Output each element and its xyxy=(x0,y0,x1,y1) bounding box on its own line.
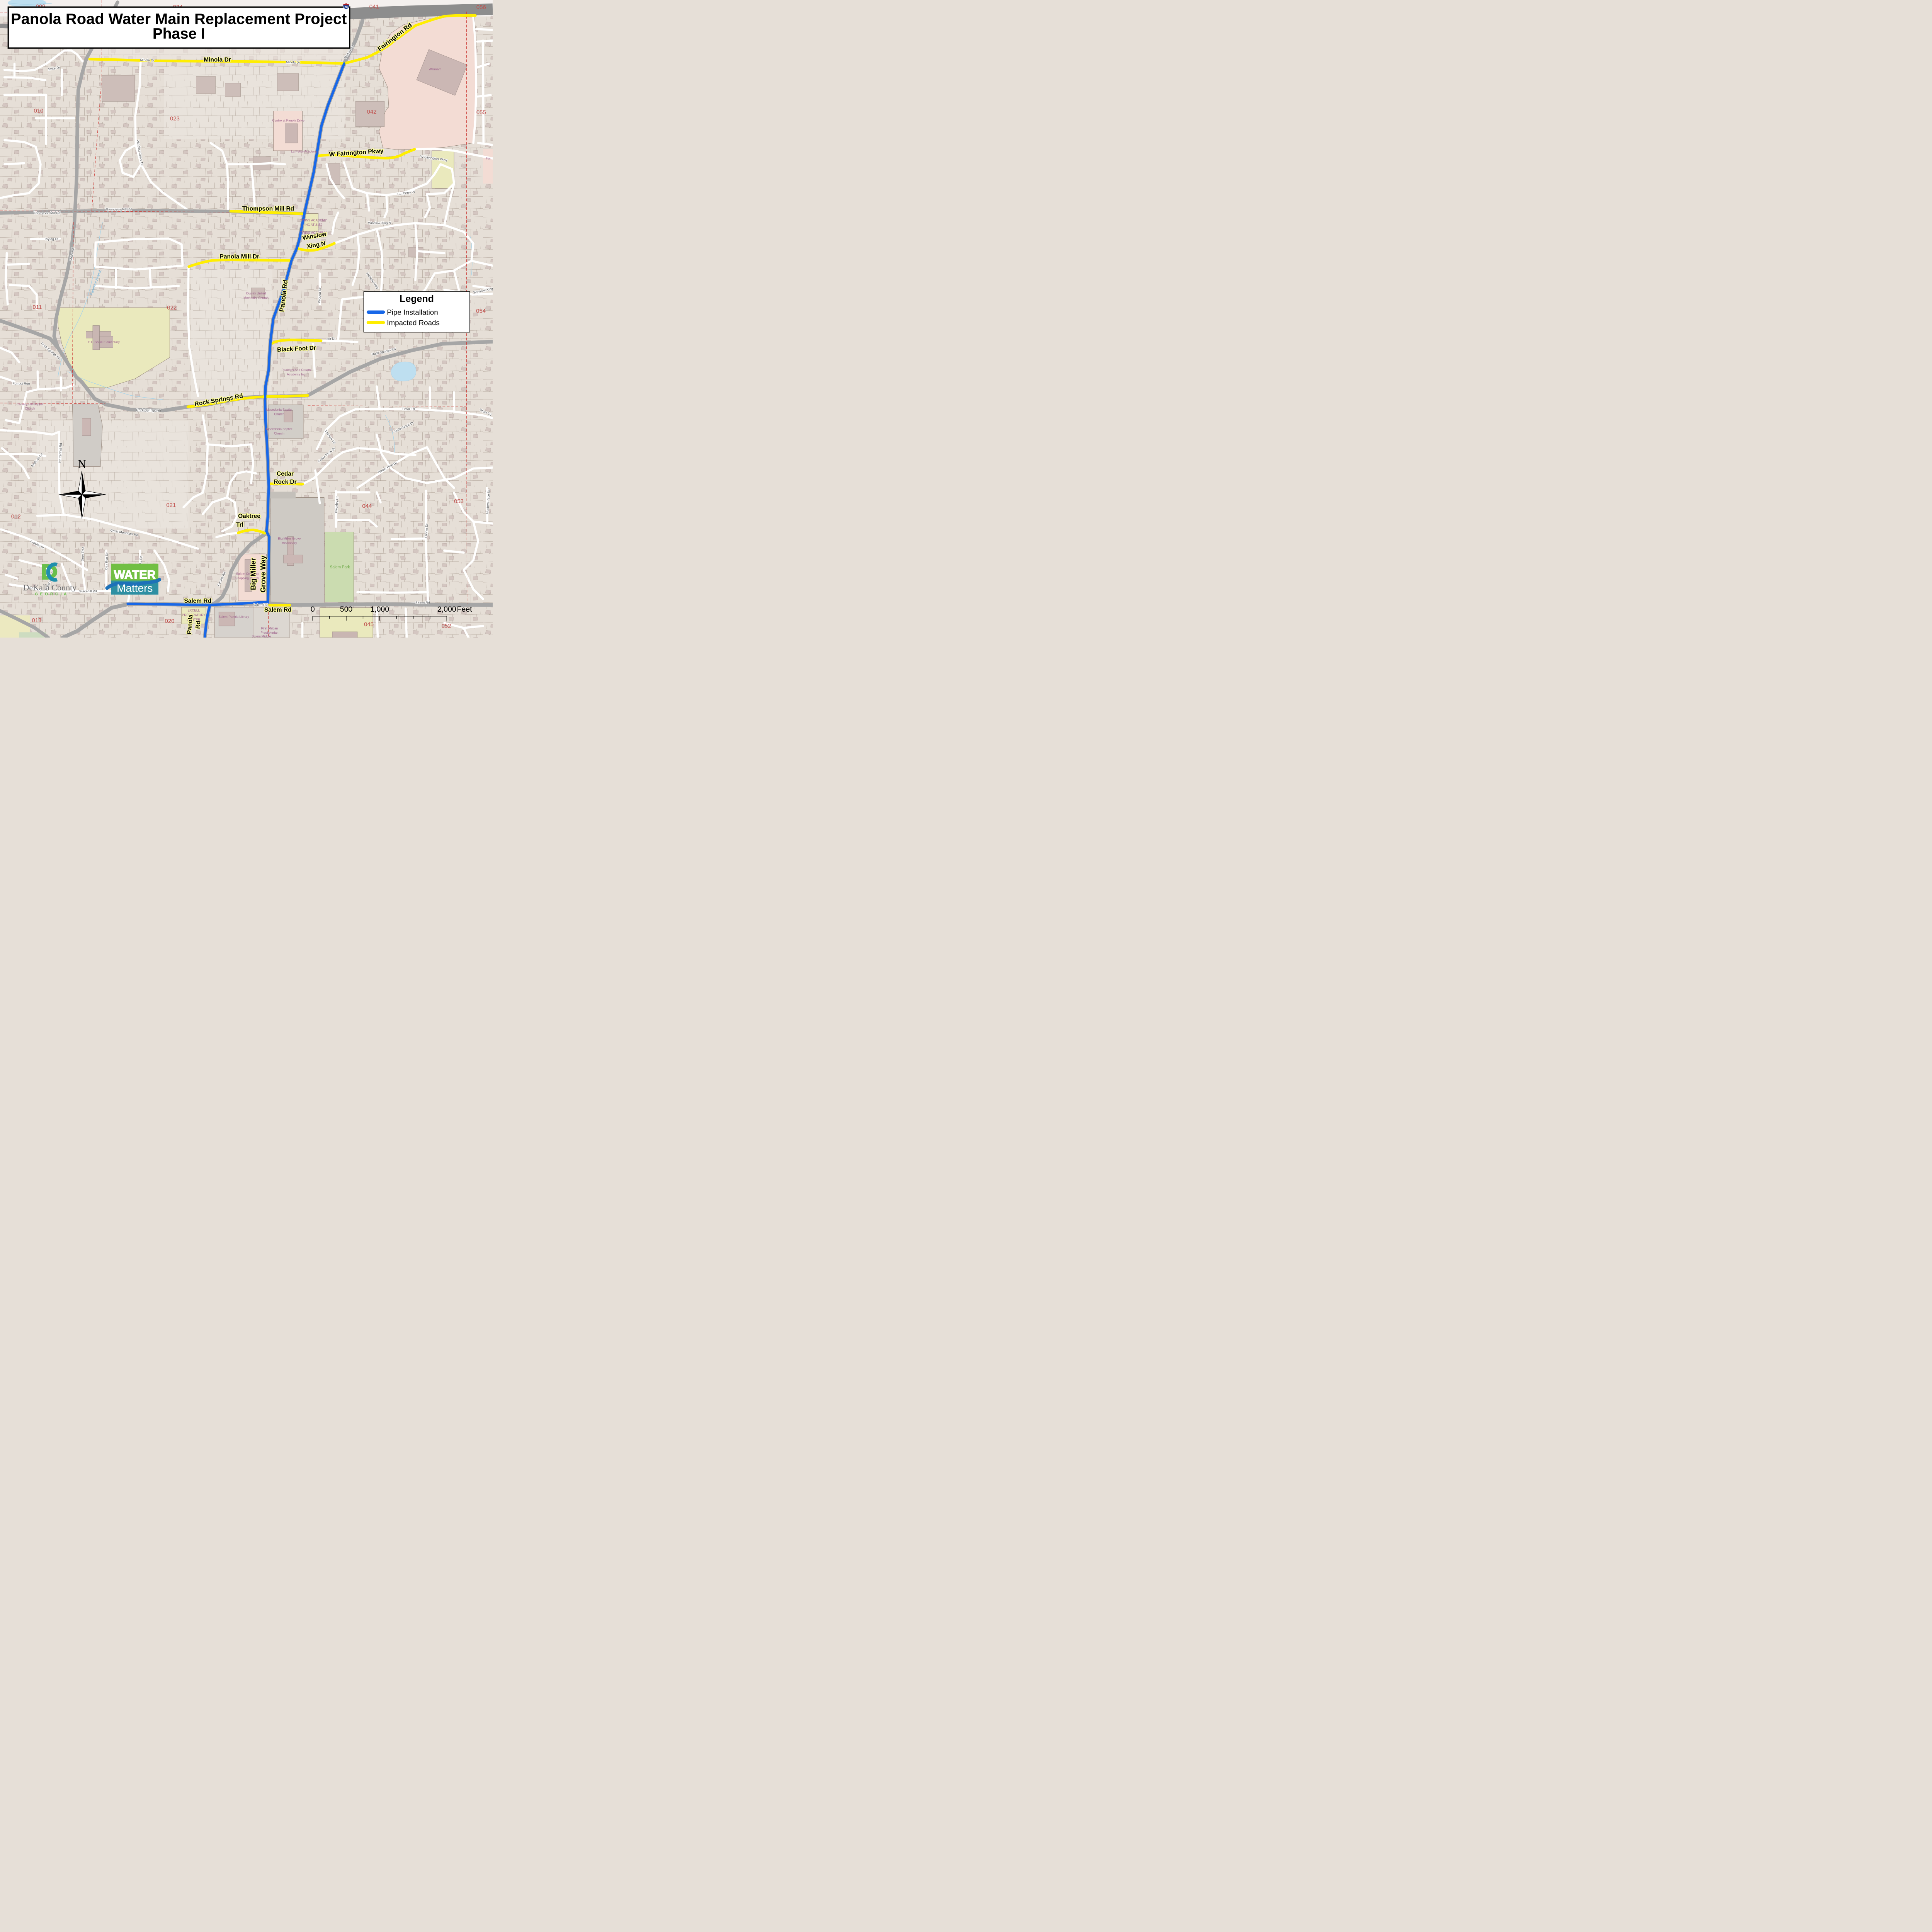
svg-text:Panola Mill Dr: Panola Mill Dr xyxy=(220,253,260,260)
svg-text:Calvary Hill Baptist: Calvary Hill Baptist xyxy=(17,403,44,406)
svg-text:Trl: Trl xyxy=(236,522,243,528)
svg-text:E.L. Bouie Elementary: E.L. Bouie Elementary xyxy=(88,340,120,344)
svg-text:Thompson Mill Rd: Thompson Mill Rd xyxy=(105,207,132,211)
svg-text:Minola Dr: Minola Dr xyxy=(286,60,300,65)
svg-text:021: 021 xyxy=(166,502,176,509)
svg-text:20: 20 xyxy=(345,5,348,9)
svg-text:Thompson Mill Rd: Thompson Mill Rd xyxy=(242,206,294,212)
svg-text:Ousley United: Ousley United xyxy=(246,292,266,295)
svg-text:020: 020 xyxy=(165,618,175,624)
svg-text:Academy Inc: Academy Inc xyxy=(287,372,305,376)
svg-text:Pequea Dr: Pequea Dr xyxy=(317,287,322,303)
svg-text:INC AT 3152: INC AT 3152 xyxy=(304,223,323,226)
svg-text:1,000: 1,000 xyxy=(370,605,389,614)
svg-text:011: 011 xyxy=(33,304,42,311)
svg-text:Church: Church xyxy=(25,407,35,410)
svg-text:Big Miller Grove: Big Miller Grove xyxy=(278,537,301,540)
svg-text:Deer Trce: Deer Trce xyxy=(80,547,85,561)
svg-text:055: 055 xyxy=(476,109,486,116)
svg-text:500: 500 xyxy=(340,605,353,614)
svg-text:Oak Run Dr: Oak Run Dr xyxy=(104,553,109,570)
svg-text:Walmart: Walmart xyxy=(429,68,441,71)
svg-text:Gracehill Rd: Gracehill Rd xyxy=(79,589,97,593)
svg-text:010: 010 xyxy=(34,107,44,114)
svg-text:Salem Rd: Salem Rd xyxy=(415,601,430,605)
svg-text:Legend: Legend xyxy=(400,293,434,304)
svg-text:044: 044 xyxy=(362,503,372,510)
svg-text:052: 052 xyxy=(442,622,451,629)
svg-text:ks Rd: ks Rd xyxy=(138,555,143,564)
svg-text:Pipe Installation: Pipe Installation xyxy=(387,308,438,316)
svg-text:022: 022 xyxy=(167,304,177,311)
svg-text:2,000: 2,000 xyxy=(437,605,456,614)
svg-text:Timor Trl: Timor Trl xyxy=(402,407,415,411)
svg-text:Fair: Fair xyxy=(486,157,492,160)
svg-text:Ivylog Ct: Ivylog Ct xyxy=(46,237,59,241)
svg-text:053: 053 xyxy=(454,498,464,505)
svg-text:Oaktree: Oaktree xyxy=(238,513,260,520)
svg-text:Forrest Run: Forrest Run xyxy=(13,382,30,386)
svg-text:TWINS ACADEMY: TWINS ACADEMY xyxy=(300,219,327,222)
svg-text:012: 012 xyxy=(11,513,21,520)
svg-text:041: 041 xyxy=(369,3,379,10)
svg-text:Macedonia Baptist: Macedonia Baptist xyxy=(266,408,293,412)
svg-text:Cedar: Cedar xyxy=(277,471,294,477)
svg-text:Church: Church xyxy=(274,412,284,416)
svg-text:WATER: WATER xyxy=(114,568,156,582)
svg-text:Thompson Mill Rd: Thompson Mill Rd xyxy=(34,211,61,215)
svg-text:Rock Dr: Rock Dr xyxy=(274,479,296,485)
svg-text:Panola Road Water Main Replace: Panola Road Water Main Replacement Proje… xyxy=(11,11,347,27)
svg-text:First African: First African xyxy=(261,627,278,630)
svg-text:0: 0 xyxy=(311,605,315,614)
svg-text:023: 023 xyxy=(170,115,180,122)
svg-text:Church: Church xyxy=(274,432,284,435)
svg-text:EXCELL: EXCELL xyxy=(187,609,200,612)
svg-text:Salem Rd: Salem Rd xyxy=(253,603,268,607)
svg-text:Salem Middle: Salem Middle xyxy=(252,635,271,638)
svg-text:Impacted Roads: Impacted Roads xyxy=(387,319,440,327)
svg-text:Rd: Rd xyxy=(195,621,202,629)
svg-text:042: 042 xyxy=(367,109,377,115)
svg-text:056: 056 xyxy=(476,4,486,10)
svg-text:Minola Dr: Minola Dr xyxy=(140,58,154,63)
svg-text:Salem Rd: Salem Rd xyxy=(184,598,211,604)
svg-text:Big Miller: Big Miller xyxy=(249,558,257,590)
svg-text:Phase I: Phase I xyxy=(153,26,205,42)
svg-text:Presbyterian: Presbyterian xyxy=(260,631,279,634)
svg-text:Macedonia Baptist: Macedonia Baptist xyxy=(266,427,293,431)
svg-text:La Petite Academy: La Petite Academy xyxy=(291,150,318,153)
svg-text:Winslow Xing N: Winslow Xing N xyxy=(368,221,391,225)
svg-text:GEORGIA: GEORGIA xyxy=(35,592,69,597)
svg-text:Salem-Panola Library: Salem-Panola Library xyxy=(218,615,249,619)
svg-text:Minola Dr: Minola Dr xyxy=(204,57,231,63)
svg-text:Missionary: Missionary xyxy=(282,541,297,545)
svg-text:N: N xyxy=(78,457,87,471)
svg-text:045: 045 xyxy=(364,621,374,628)
svg-text:Matters: Matters xyxy=(117,582,153,594)
svg-text:Centre at Panola Drive: Centre at Panola Drive xyxy=(272,119,305,122)
svg-text:DeKalb County: DeKalb County xyxy=(23,583,77,592)
svg-text:Grove Way: Grove Way xyxy=(259,555,267,593)
svg-text:Methodist Church: Methodist Church xyxy=(243,296,269,299)
svg-text:Peaches And Cream: Peaches And Cream xyxy=(281,368,311,372)
svg-text:Salem Park: Salem Park xyxy=(330,565,350,570)
svg-text:Salem Rd: Salem Rd xyxy=(264,607,292,613)
svg-text:Feet: Feet xyxy=(457,605,473,614)
svg-text:013: 013 xyxy=(32,617,42,624)
svg-text:054: 054 xyxy=(476,308,486,315)
svg-text:oot Dr: oot Dr xyxy=(327,337,335,341)
